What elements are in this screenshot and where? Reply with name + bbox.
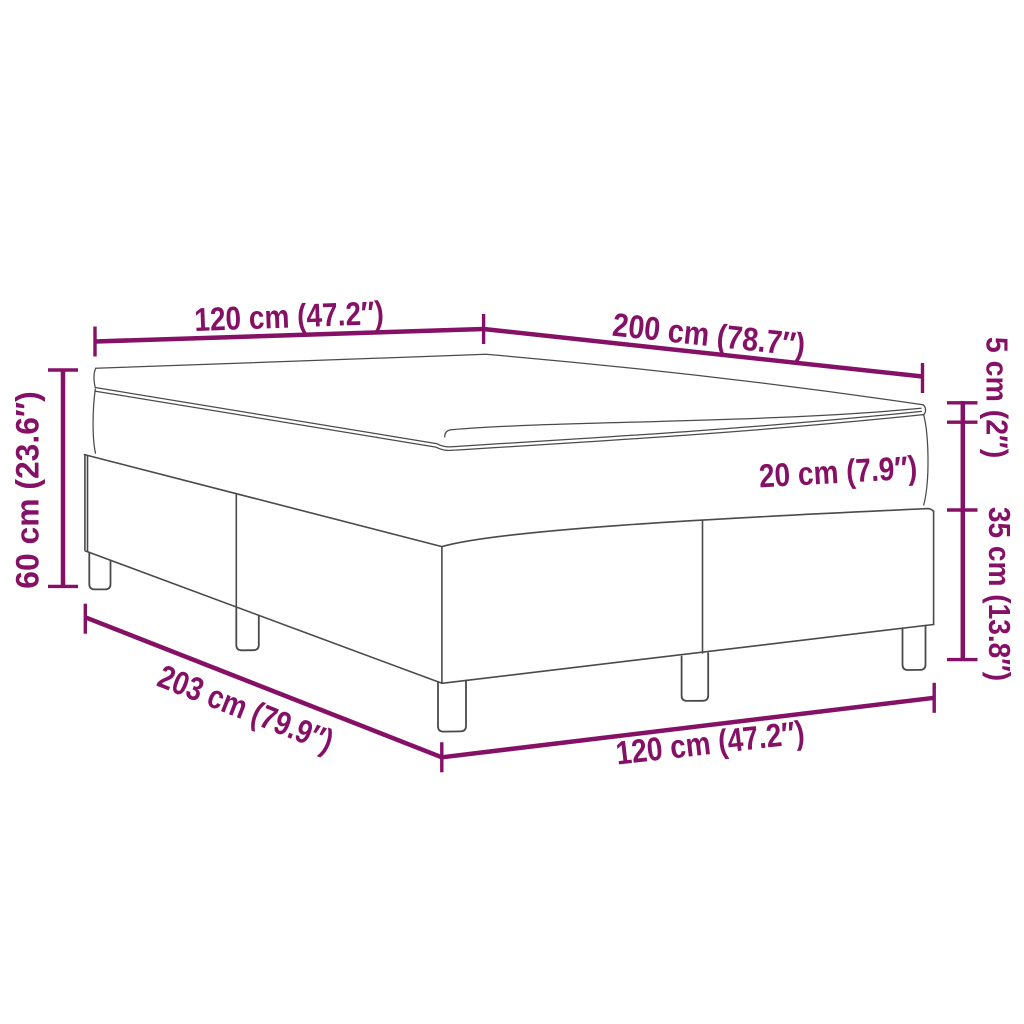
svg-text:35 cm (13.8″): 35 cm (13.8″) — [982, 507, 1017, 681]
svg-text:60 cm (23.6″): 60 cm (23.6″) — [9, 391, 45, 588]
svg-text:5 cm (2″): 5 cm (2″) — [979, 337, 1013, 458]
svg-text:120 cm (47.2″): 120 cm (47.2″) — [194, 295, 385, 339]
